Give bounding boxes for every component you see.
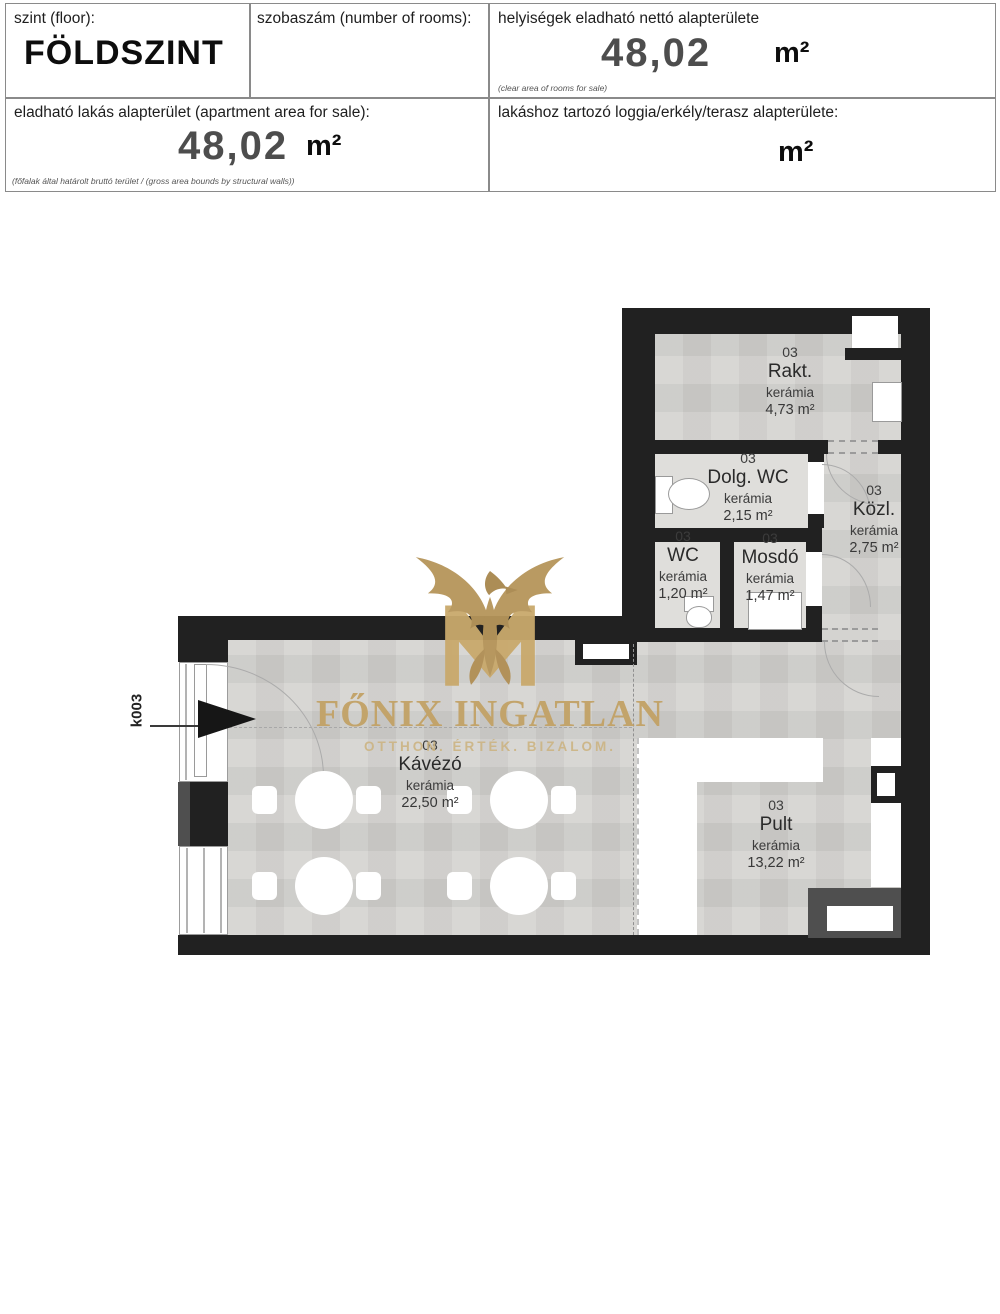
right-window-opening bbox=[877, 773, 895, 796]
chair-icon bbox=[551, 786, 576, 814]
room-label-mosdo: 03 Mosdó kerámia 1,47 m² bbox=[685, 530, 855, 605]
floor-plan: k003 03 Rakt. kerámia 4,73 m² 03 Dolg. W… bbox=[0, 0, 1000, 1314]
window-glazing-line bbox=[203, 848, 205, 933]
wall-left-mid bbox=[190, 782, 228, 846]
room-name: Kávézó bbox=[345, 754, 515, 776]
counter-horizontal bbox=[697, 738, 823, 782]
room-id: 03 bbox=[685, 530, 855, 546]
bottom-right-fixture-opening bbox=[827, 906, 893, 931]
entrance-leader-line bbox=[150, 725, 198, 727]
entrance-code-label: k003 bbox=[129, 686, 146, 736]
room-area: 1,47 m² bbox=[685, 588, 855, 605]
window-glazing-line bbox=[220, 848, 222, 933]
room-area: 13,22 m² bbox=[691, 855, 861, 872]
chair-icon bbox=[551, 872, 576, 900]
wall-outer-right bbox=[901, 308, 930, 955]
room-label-kavezo: 03 Kávézó kerámia 22,50 m² bbox=[345, 737, 515, 812]
wall-bottom bbox=[178, 935, 930, 955]
cafe-table-icon bbox=[490, 857, 548, 915]
entrance-arrow-icon bbox=[198, 700, 256, 738]
toilet-icon bbox=[686, 606, 712, 628]
door-opening-rakt-kozl bbox=[828, 440, 878, 454]
room-id: 03 bbox=[663, 450, 833, 466]
room-material: kerámia bbox=[705, 385, 875, 401]
chair-icon bbox=[252, 872, 277, 900]
window-glazing-line bbox=[185, 664, 187, 780]
room-area: 4,73 m² bbox=[705, 402, 875, 419]
room-material: kerámia bbox=[691, 838, 861, 854]
room-name: Mosdó bbox=[685, 547, 855, 569]
room-name: Közl. bbox=[789, 499, 959, 521]
wall-cabinet-fixture bbox=[872, 382, 902, 422]
wall-main-top bbox=[178, 616, 655, 640]
room-id: 03 bbox=[789, 482, 959, 498]
room-label-pult: 03 Pult kerámia 13,22 m² bbox=[691, 797, 861, 872]
room-id: 03 bbox=[691, 797, 861, 813]
room-material: kerámia bbox=[685, 571, 855, 587]
room-area: 22,50 m² bbox=[345, 795, 515, 812]
ceiling-dashed-line bbox=[214, 727, 632, 728]
chair-icon bbox=[447, 872, 472, 900]
wall-left-corner bbox=[178, 616, 228, 662]
room-name: Pult bbox=[691, 814, 861, 836]
chair-icon bbox=[356, 872, 381, 900]
chair-icon bbox=[252, 786, 277, 814]
serving-hatch-opening bbox=[583, 644, 629, 659]
window-glazing-line bbox=[186, 848, 188, 933]
room-name: Rakt. bbox=[705, 361, 875, 383]
room-id: 03 bbox=[345, 737, 515, 753]
counter-vertical bbox=[637, 738, 697, 935]
room-label-rakt: 03 Rakt. kerámia 4,73 m² bbox=[705, 344, 875, 419]
cafe-table-icon bbox=[295, 857, 353, 915]
room-id: 03 bbox=[705, 344, 875, 360]
door-opening-kozl-main bbox=[822, 628, 878, 642]
right-wall-niche bbox=[871, 738, 901, 887]
room-material: kerámia bbox=[345, 778, 515, 794]
wall-wing-bottom bbox=[655, 628, 822, 642]
area-boundary-dashed-line bbox=[633, 644, 634, 935]
wall-rakt-bottom-stub bbox=[878, 440, 901, 454]
